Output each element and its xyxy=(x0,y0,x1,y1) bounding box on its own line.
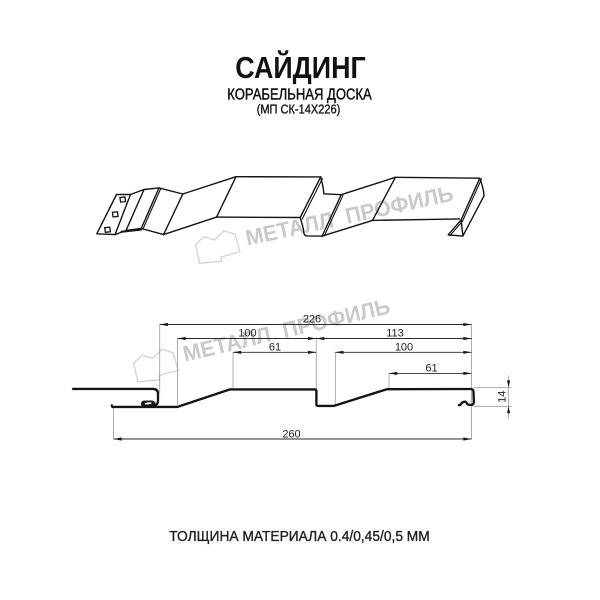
svg-text:100: 100 xyxy=(238,328,256,340)
svg-text:260: 260 xyxy=(282,428,300,440)
svg-text:113: 113 xyxy=(386,328,404,340)
svg-text:(МП СК-14Х226): (МП СК-14Х226) xyxy=(257,102,341,117)
svg-text:61: 61 xyxy=(425,363,437,375)
svg-text:ТОЛЩИНА МАТЕРИАЛА 0.4/0,45/0,5: ТОЛЩИНА МАТЕРИАЛА 0.4/0,45/0,5 ММ xyxy=(169,529,430,545)
svg-text:100: 100 xyxy=(395,341,413,353)
svg-text:226: 226 xyxy=(303,313,321,325)
svg-text:14: 14 xyxy=(496,391,508,403)
svg-text:61: 61 xyxy=(269,341,281,353)
svg-text:САЙДИНГ: САЙДИНГ xyxy=(235,49,366,85)
